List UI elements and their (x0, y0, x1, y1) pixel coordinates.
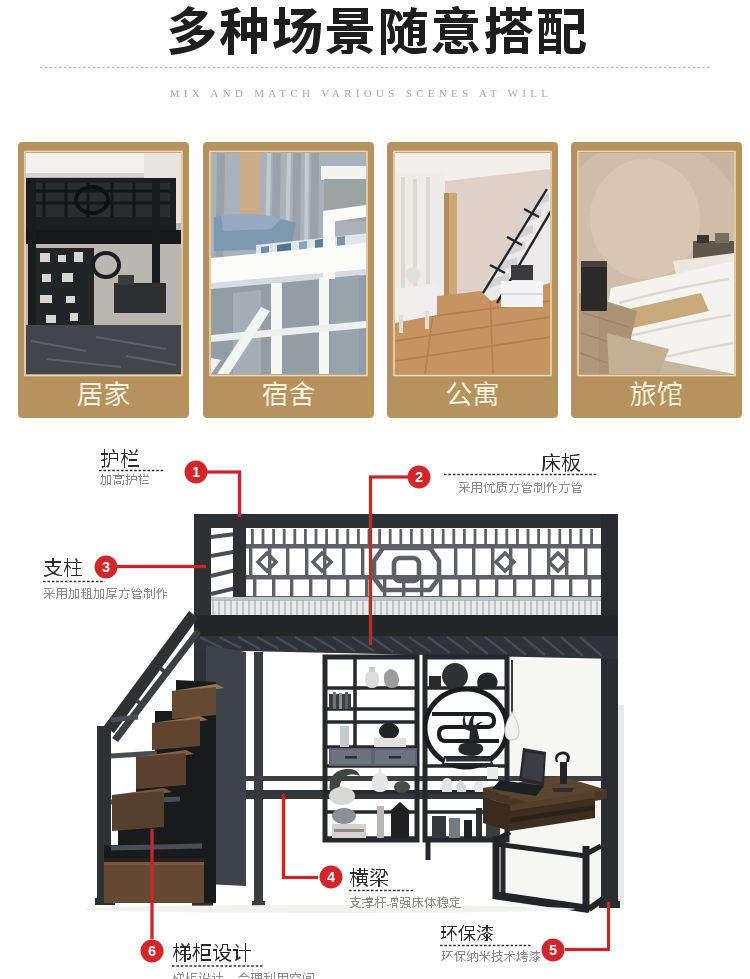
svg-text:MIX AND MATCH VARIOUS SCENES A: MIX AND MATCH VARIOUS SCENES AT WILL (170, 88, 553, 100)
svg-text:3: 3 (102, 560, 110, 576)
svg-text:5: 5 (549, 943, 557, 959)
svg-text:4: 4 (327, 870, 335, 886)
svg-text:1: 1 (192, 465, 200, 481)
svg-text:2: 2 (415, 470, 423, 486)
svg-text:6: 6 (148, 944, 156, 960)
